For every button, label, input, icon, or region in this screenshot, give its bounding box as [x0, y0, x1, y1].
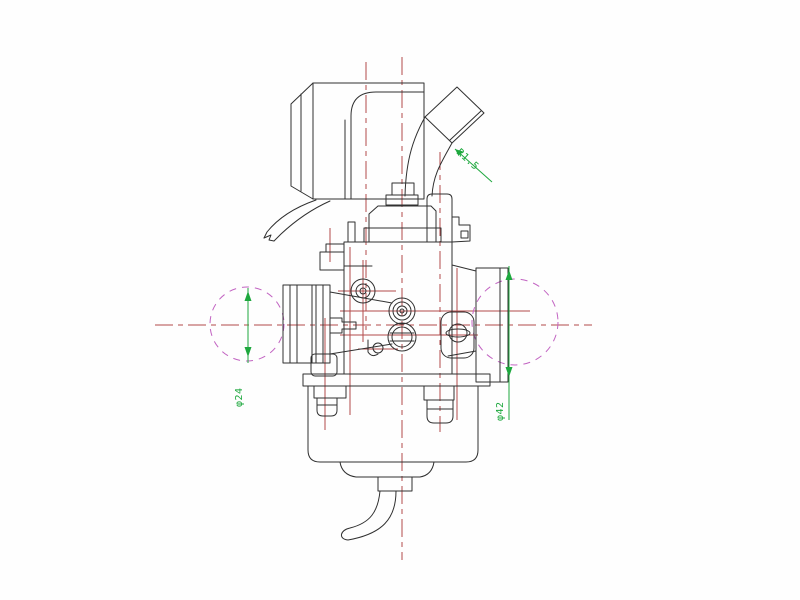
drain-spout: [378, 477, 412, 491]
left-dim-arrow-down: [245, 347, 252, 357]
snorkel-end-cap: [450, 111, 481, 140]
left-bolt-head: [317, 398, 337, 416]
outlet-bell-top: [452, 265, 476, 271]
top-left-tube: [348, 222, 355, 242]
carburetor-drawing: φ24 φ42 R1.5: [0, 0, 800, 600]
right-dim-arrow-down: [506, 367, 513, 377]
left-diameter-dimension: φ24: [234, 288, 252, 407]
outlet-screw-slot: [446, 329, 470, 337]
snorkel-pipe: [425, 87, 484, 143]
phantom-circles: [210, 279, 558, 365]
left-diameter-label: φ24: [234, 387, 245, 407]
vent-tube: [264, 200, 330, 241]
radius-label: R1.5: [454, 147, 481, 173]
radius-callout: R1.5: [454, 147, 492, 182]
vent-tube-inner: [274, 201, 330, 241]
right-diameter-dimension: φ42: [495, 266, 513, 421]
drain-screw: [373, 343, 383, 353]
right-diameter-label: φ42: [495, 401, 506, 421]
outlet-phantom-circle: [472, 279, 558, 365]
vent-tube-outer: [264, 200, 316, 238]
left-dim-arrow-up: [245, 291, 252, 301]
bowl-dome: [340, 462, 434, 477]
snorkel-elbow-inner: [405, 117, 425, 196]
choke-lever-block: [320, 252, 344, 270]
right-dim-arrow-up: [506, 270, 513, 280]
centerlines: [155, 57, 592, 560]
bowl-body: [308, 386, 478, 462]
left-bolt-block: [314, 386, 346, 398]
right-bolt-block: [424, 386, 454, 400]
intake-snorkel: [405, 87, 484, 196]
drain-hook-tube: [341, 491, 396, 540]
air-filter-box: [291, 83, 424, 199]
air-box-outline: [291, 83, 424, 199]
fuel-inlet-nipple: [311, 354, 337, 376]
snorkel-elbow-outer: [432, 143, 452, 196]
cable-adjuster-top: [392, 183, 414, 195]
main-body: [311, 242, 476, 376]
cad-drawing-canvas: φ24 φ42 R1.5: [0, 0, 800, 600]
float-bowl: [303, 374, 490, 540]
cable-bracket-hook: [461, 231, 468, 238]
choke-lever-block-top: [326, 244, 344, 252]
